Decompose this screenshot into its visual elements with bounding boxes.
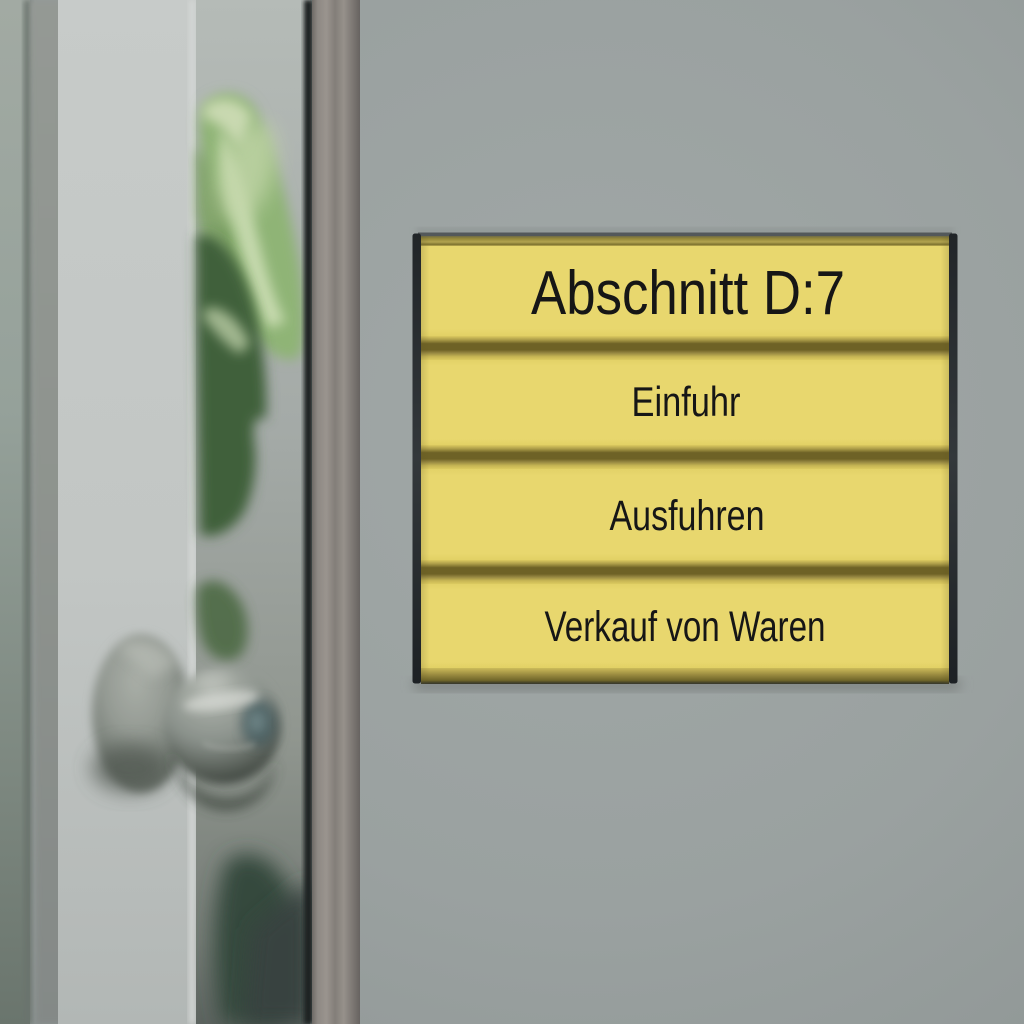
svg-text:Ausfuhren: Ausfuhren [610, 492, 765, 540]
svg-text:Verkauf von Waren: Verkauf von Waren [545, 603, 826, 651]
svg-text:Einfuhr: Einfuhr [632, 378, 741, 425]
svg-text:Abschnitt D:7: Abschnitt D:7 [531, 259, 845, 328]
